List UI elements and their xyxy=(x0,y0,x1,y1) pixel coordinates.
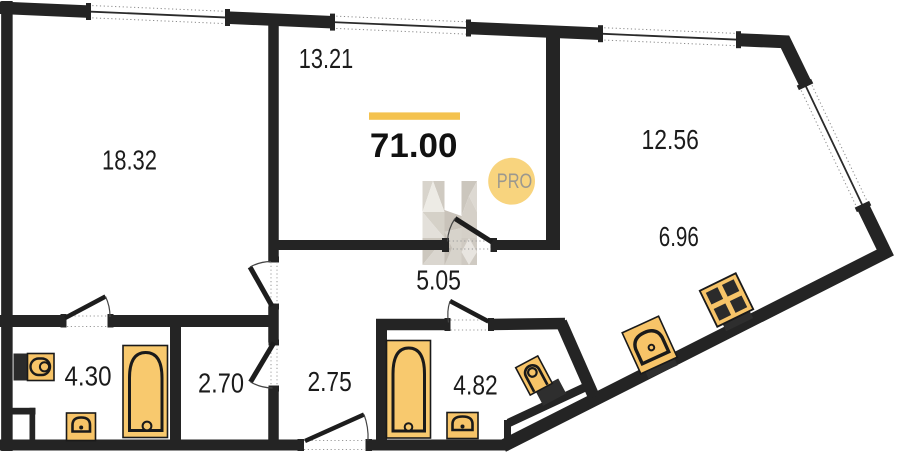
svg-text:2.75: 2.75 xyxy=(307,366,351,397)
svg-text:4.82: 4.82 xyxy=(453,370,497,401)
svg-text:2.70: 2.70 xyxy=(198,368,244,399)
svg-text:13.21: 13.21 xyxy=(299,43,353,74)
svg-text:71.00: 71.00 xyxy=(370,127,458,165)
svg-text:PRO: PRO xyxy=(497,170,532,193)
svg-text:5.05: 5.05 xyxy=(416,265,461,296)
svg-text:6.96: 6.96 xyxy=(659,221,699,252)
svg-text:12.56: 12.56 xyxy=(642,124,699,155)
svg-text:4.30: 4.30 xyxy=(65,361,112,392)
svg-text:18.32: 18.32 xyxy=(102,145,157,176)
